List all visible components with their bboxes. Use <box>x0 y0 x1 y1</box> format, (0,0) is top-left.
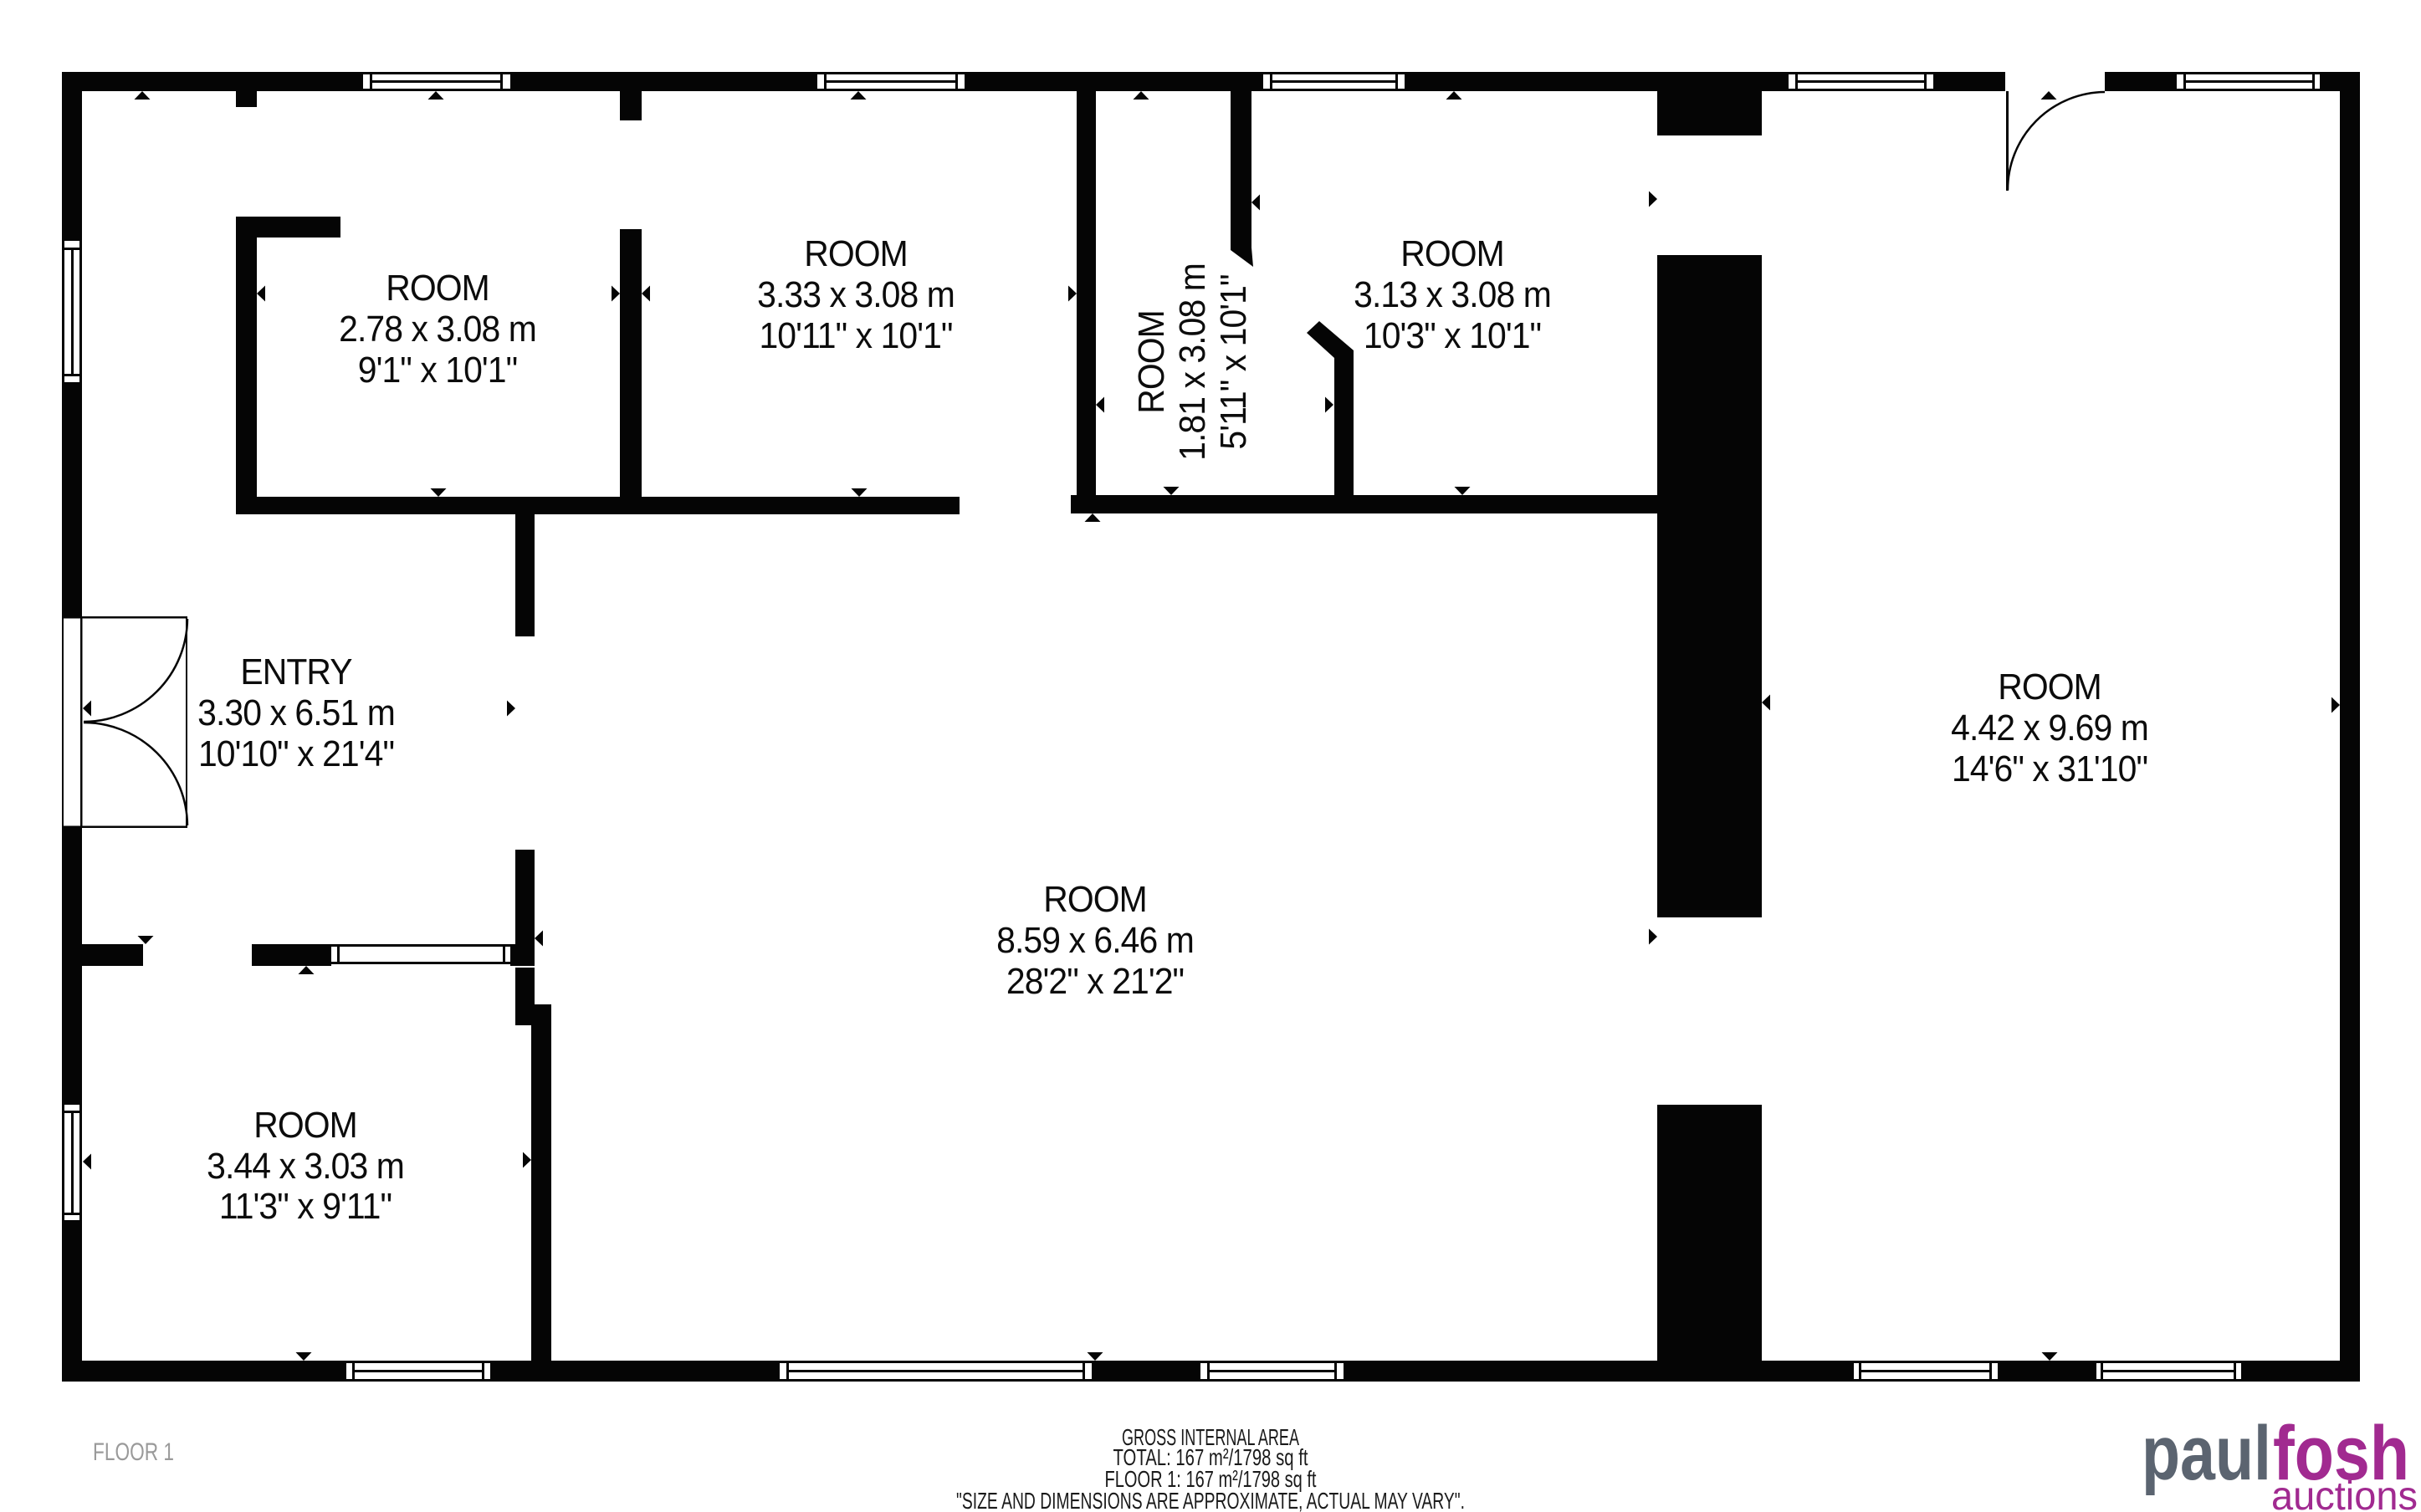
svg-text:2.78 x 3.08 m: 2.78 x 3.08 m <box>339 309 536 350</box>
svg-text:3.44 x 3.03 m: 3.44 x 3.03 m <box>207 1147 404 1188</box>
svg-text:28'2" x 21'2": 28'2" x 21'2" <box>1006 962 1184 1003</box>
svg-text:10'10" x 21'4": 10'10" x 21'4" <box>198 734 394 775</box>
svg-text:3.13 x 3.08 m: 3.13 x 3.08 m <box>1354 275 1551 316</box>
svg-text:1.81 x 3.08 m: 1.81 x 3.08 m <box>1173 263 1214 461</box>
svg-text:10'3" x 10'1": 10'3" x 10'1" <box>1364 316 1541 357</box>
svg-text:ROOM: ROOM <box>386 268 489 309</box>
svg-text:ROOM: ROOM <box>1400 234 1504 275</box>
svg-text:ROOM: ROOM <box>1043 880 1147 921</box>
svg-text:ROOM: ROOM <box>1132 310 1173 414</box>
svg-text:3.33 x 3.08 m: 3.33 x 3.08 m <box>757 275 955 316</box>
svg-text:11'3" x 9'11": 11'3" x 9'11" <box>219 1187 392 1228</box>
svg-text:paul: paul <box>2142 1411 2271 1496</box>
svg-text:14'6" x 31'10": 14'6" x 31'10" <box>1952 749 2147 790</box>
svg-text:ROOM: ROOM <box>1998 667 2101 708</box>
svg-text:"SIZE AND DIMENSIONS ARE APPRO: "SIZE AND DIMENSIONS ARE APPROXIMATE, AC… <box>956 1488 1465 1512</box>
svg-text:10'11" x 10'1": 10'11" x 10'1" <box>759 316 952 357</box>
svg-text:ENTRY: ENTRY <box>240 652 352 693</box>
svg-text:3.30 x 6.51 m: 3.30 x 6.51 m <box>197 693 395 734</box>
svg-text:ROOM: ROOM <box>804 234 908 275</box>
svg-text:4.42 x 9.69 m: 4.42 x 9.69 m <box>1951 708 2148 749</box>
svg-text:auctions: auctions <box>2271 1474 2418 1512</box>
svg-text:9'1" x 10'1": 9'1" x 10'1" <box>358 350 517 391</box>
svg-text:5'11" x 10'1": 5'11" x 10'1" <box>1214 274 1255 449</box>
svg-text:FLOOR 1: FLOOR 1 <box>93 1438 174 1466</box>
svg-text:8.59 x 6.46 m: 8.59 x 6.46 m <box>996 921 1194 962</box>
svg-text:ROOM: ROOM <box>253 1106 357 1147</box>
